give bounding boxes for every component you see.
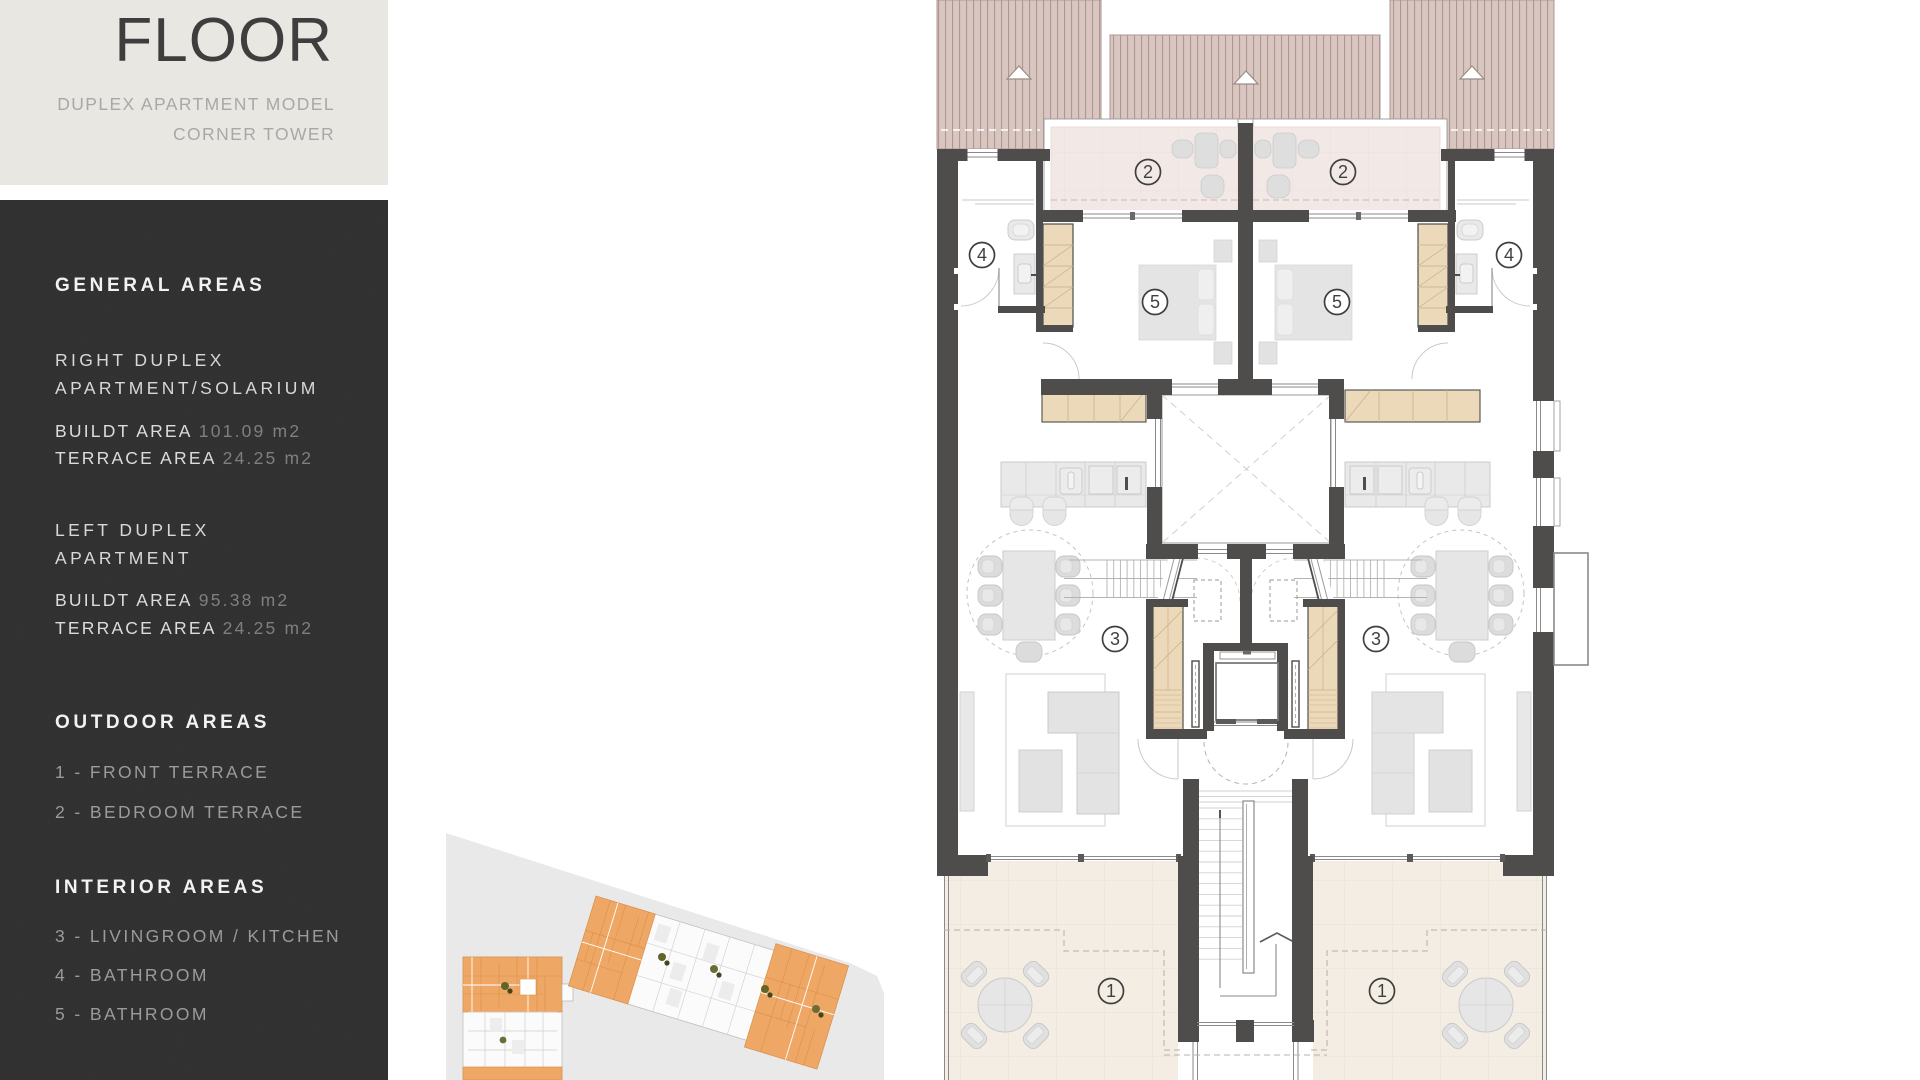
svg-text:RIGHT DUPLEX: RIGHT DUPLEX xyxy=(55,350,225,370)
svg-text:3: 3 xyxy=(1110,629,1120,649)
svg-text:OUTDOOR AREAS: OUTDOOR AREAS xyxy=(55,712,270,733)
svg-text:CORNER TOWER: CORNER TOWER xyxy=(173,124,335,144)
svg-text:1 - FRONT TERRACE: 1 - FRONT TERRACE xyxy=(55,762,269,782)
svg-text:BUILDT AREA 95.38 m2: BUILDT AREA 95.38 m2 xyxy=(55,590,289,610)
svg-text:4: 4 xyxy=(977,245,987,265)
svg-text:3 - LIVINGROOM / KITCHEN: 3 - LIVINGROOM / KITCHEN xyxy=(55,926,341,946)
svg-text:2 - BEDROOM TERRACE: 2 - BEDROOM TERRACE xyxy=(55,802,304,822)
svg-text:4: 4 xyxy=(1504,245,1514,265)
svg-text:5: 5 xyxy=(1332,292,1342,312)
svg-text:INTERIOR AREAS: INTERIOR AREAS xyxy=(55,877,267,898)
svg-text:DUPLEX APARTMENT MODEL: DUPLEX APARTMENT MODEL xyxy=(57,94,335,114)
svg-text:2: 2 xyxy=(1338,162,1348,182)
svg-text:2: 2 xyxy=(1143,162,1153,182)
svg-text:1: 1 xyxy=(1106,981,1116,1001)
svg-text:4 - BATHROOM: 4 - BATHROOM xyxy=(55,965,209,985)
svg-text:APARTMENT/SOLARIUM: APARTMENT/SOLARIUM xyxy=(55,378,319,398)
svg-text:GENERAL AREAS: GENERAL AREAS xyxy=(55,275,265,296)
svg-text:BUILDT AREA 101.09 m2: BUILDT AREA 101.09 m2 xyxy=(55,421,301,441)
svg-text:5 - BATHROOM: 5 - BATHROOM xyxy=(55,1004,209,1024)
svg-text:LEFT DUPLEX: LEFT DUPLEX xyxy=(55,520,210,540)
svg-text:1: 1 xyxy=(1377,981,1387,1001)
svg-text:TERRACE AREA 24.25 m2: TERRACE AREA 24.25 m2 xyxy=(55,618,313,638)
svg-text:TERRACE AREA 24.25 m2: TERRACE AREA 24.25 m2 xyxy=(55,448,313,468)
svg-text:5: 5 xyxy=(1150,292,1160,312)
svg-text:APARTMENT: APARTMENT xyxy=(55,548,192,568)
svg-text:FLOOR: FLOOR xyxy=(114,6,333,75)
svg-text:3: 3 xyxy=(1371,629,1381,649)
